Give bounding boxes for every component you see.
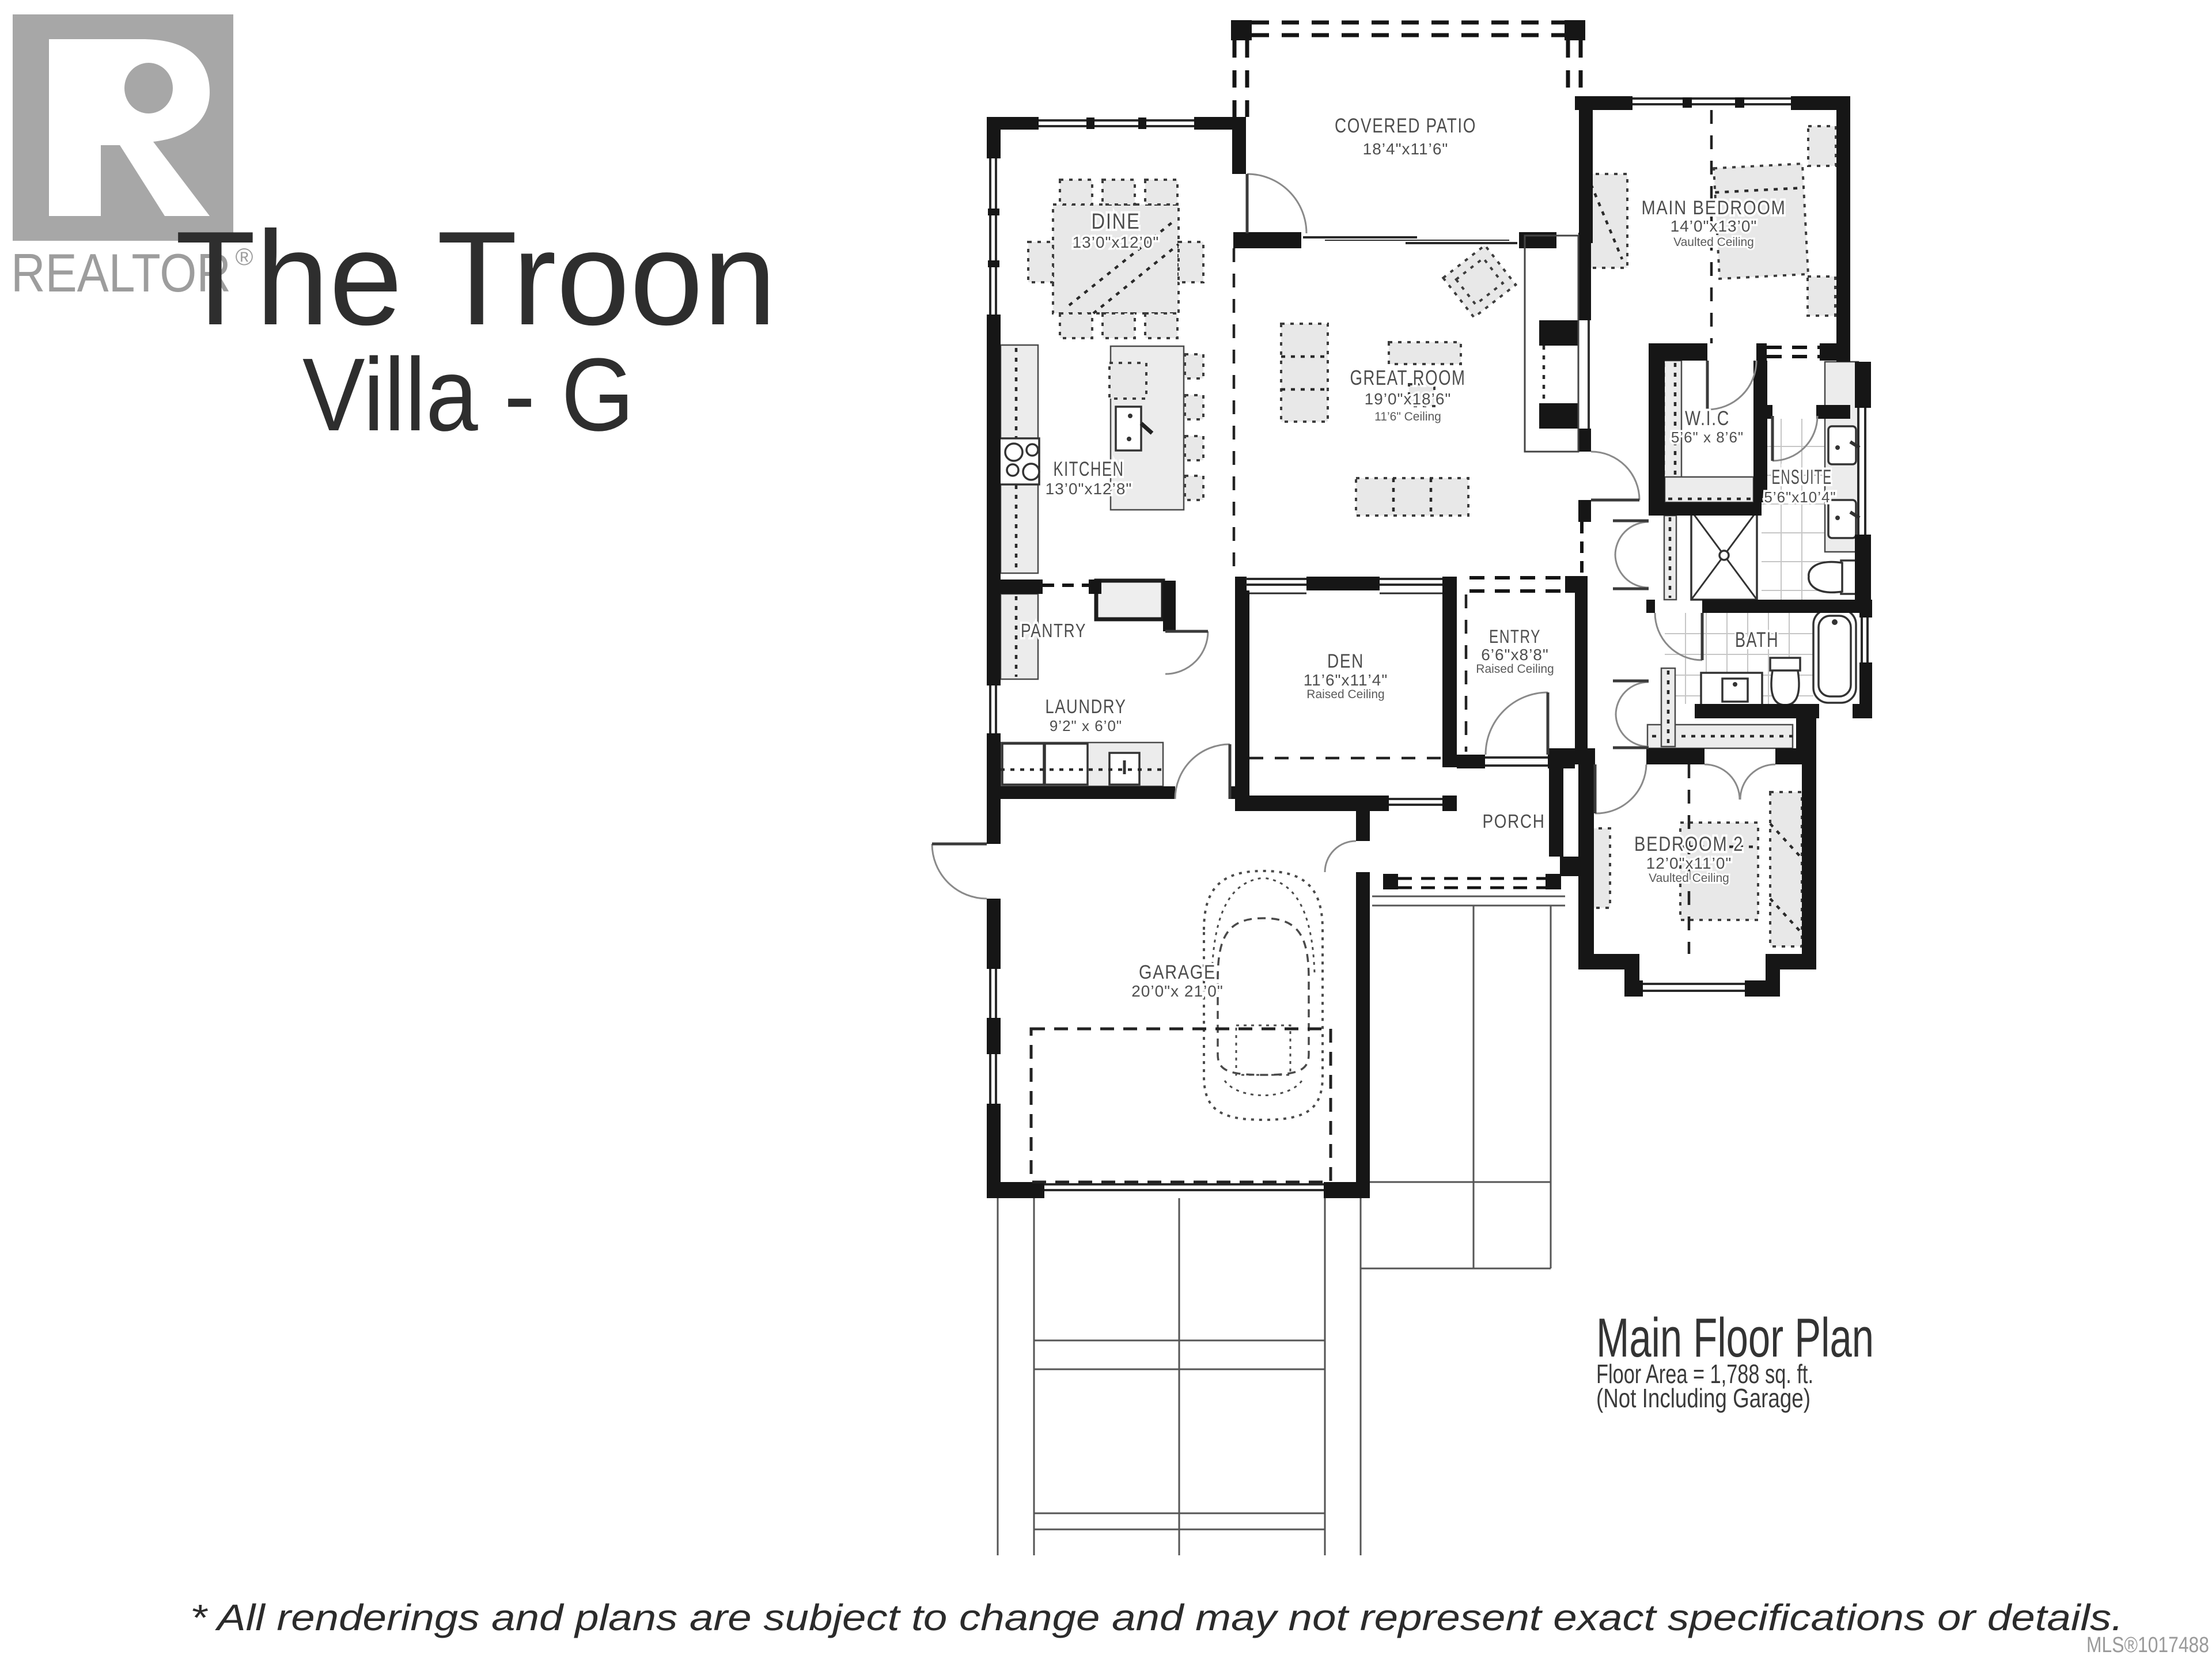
svg-text:BATH: BATH	[1735, 628, 1779, 652]
svg-text:PANTRY: PANTRY	[1021, 620, 1086, 641]
svg-text:5’6"x10’4": 5’6"x10’4"	[1764, 488, 1836, 506]
svg-text:The Troon: The Troon	[175, 204, 777, 353]
svg-text:(Not Including Garage): (Not Including Garage)	[1596, 1383, 1810, 1413]
svg-text:KITCHEN: KITCHEN	[1054, 458, 1124, 480]
svg-text:MAIN BEDROOM: MAIN BEDROOM	[1642, 197, 1786, 219]
svg-text:13’0"x12’0": 13’0"x12’0"	[1073, 233, 1160, 251]
svg-text:20’0"x 21’0": 20’0"x 21’0"	[1131, 982, 1224, 1000]
svg-text:LAUNDRY: LAUNDRY	[1046, 696, 1127, 718]
svg-text:ENTRY: ENTRY	[1489, 626, 1541, 647]
svg-text:13’0"x12’8": 13’0"x12’8"	[1046, 480, 1132, 498]
svg-text:Raised Ceiling: Raised Ceiling	[1476, 662, 1554, 676]
svg-text:COVERED PATIO: COVERED PATIO	[1335, 115, 1476, 137]
svg-text:5’6" x 8’6": 5’6" x 8’6"	[1671, 429, 1744, 446]
svg-text:11’6" Ceiling: 11’6" Ceiling	[1374, 410, 1441, 423]
svg-text:DEN: DEN	[1327, 650, 1364, 672]
svg-text:Vaulted Ceiling: Vaulted Ceiling	[1649, 872, 1729, 885]
svg-text:GREAT ROOM: GREAT ROOM	[1350, 366, 1466, 389]
svg-text:BEDROOM 2: BEDROOM 2	[1634, 833, 1744, 855]
svg-text:Vaulted Ceiling: Vaulted Ceiling	[1673, 236, 1754, 249]
svg-text:9’2" x 6’0": 9’2" x 6’0"	[1050, 717, 1122, 734]
svg-text:18’4"x11’6": 18’4"x11’6"	[1363, 140, 1449, 158]
svg-text:W.I.C: W.I.C	[1685, 407, 1730, 430]
svg-text:* All renderings and plans are: * All renderings and plans are subject t…	[190, 1597, 2123, 1638]
svg-text:11’6"x11’4": 11’6"x11’4"	[1304, 671, 1388, 689]
svg-text:6’6"x8’8": 6’6"x8’8"	[1481, 646, 1549, 664]
svg-text:PORCH: PORCH	[1483, 810, 1546, 832]
svg-text:Villa - G: Villa - G	[302, 337, 634, 453]
svg-text:DINE: DINE	[1092, 210, 1141, 234]
svg-text:12’0"x11’0": 12’0"x11’0"	[1646, 854, 1732, 872]
svg-text:GARAGE: GARAGE	[1139, 961, 1216, 983]
svg-text:Raised Ceiling: Raised Ceiling	[1306, 688, 1384, 701]
svg-text:ENSUITE: ENSUITE	[1772, 466, 1832, 488]
svg-text:MLS®1017488: MLS®1017488	[2086, 1633, 2209, 1657]
svg-text:19’0"x18’6": 19’0"x18’6"	[1365, 390, 1452, 408]
svg-text:14’0"x13’0": 14’0"x13’0"	[1671, 217, 1758, 235]
